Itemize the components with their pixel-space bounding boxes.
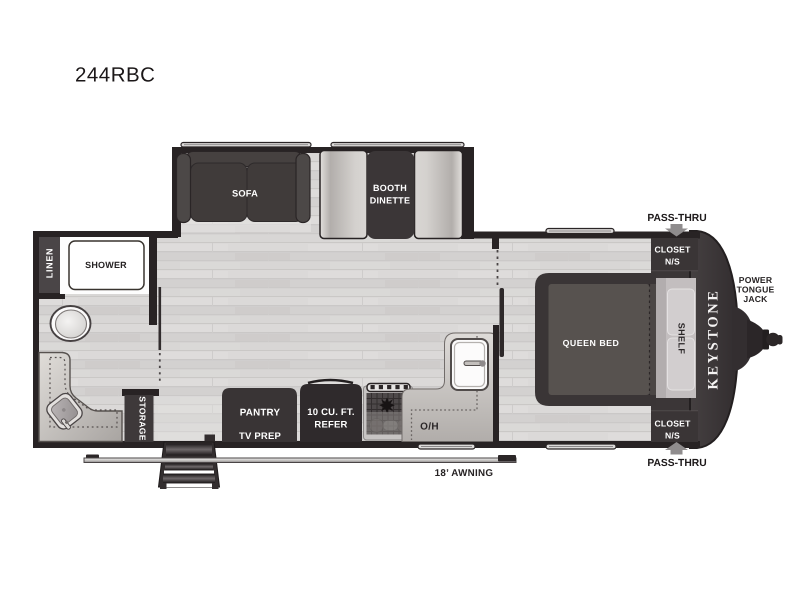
svg-text:SHOWER: SHOWER [85, 260, 127, 270]
svg-text:LINEN: LINEN [45, 248, 55, 279]
svg-text:TONGUE: TONGUE [737, 285, 775, 295]
svg-text:BOOTH: BOOTH [373, 183, 407, 193]
svg-text:STORAGE: STORAGE [138, 396, 148, 440]
svg-text:KEYSTONE: KEYSTONE [706, 288, 722, 389]
svg-text:10 CU. FT.: 10 CU. FT. [307, 407, 354, 418]
svg-text:N/S: N/S [665, 257, 680, 267]
svg-text:POWER: POWER [739, 275, 773, 285]
svg-text:QUEEN BED: QUEEN BED [563, 338, 620, 348]
svg-text:O/H: O/H [420, 422, 439, 433]
svg-text:REFER: REFER [314, 420, 347, 431]
svg-text:CLOSET: CLOSET [654, 419, 691, 429]
svg-text:PANTRY: PANTRY [240, 408, 281, 419]
svg-text:PASS-THRU: PASS-THRU [647, 458, 706, 469]
svg-text:CLOSET: CLOSET [654, 245, 691, 255]
svg-text:DINETTE: DINETTE [370, 196, 411, 206]
svg-text:SHELF: SHELF [677, 323, 687, 355]
svg-text:SOFA: SOFA [232, 189, 258, 199]
svg-text:18’ AWNING: 18’ AWNING [435, 468, 494, 479]
svg-text:PASS-THRU: PASS-THRU [647, 213, 706, 224]
svg-text:TV PREP: TV PREP [239, 431, 282, 442]
svg-text:244RBC: 244RBC [75, 64, 156, 87]
svg-text:N/S: N/S [665, 431, 680, 441]
svg-text:JACK: JACK [743, 294, 768, 304]
